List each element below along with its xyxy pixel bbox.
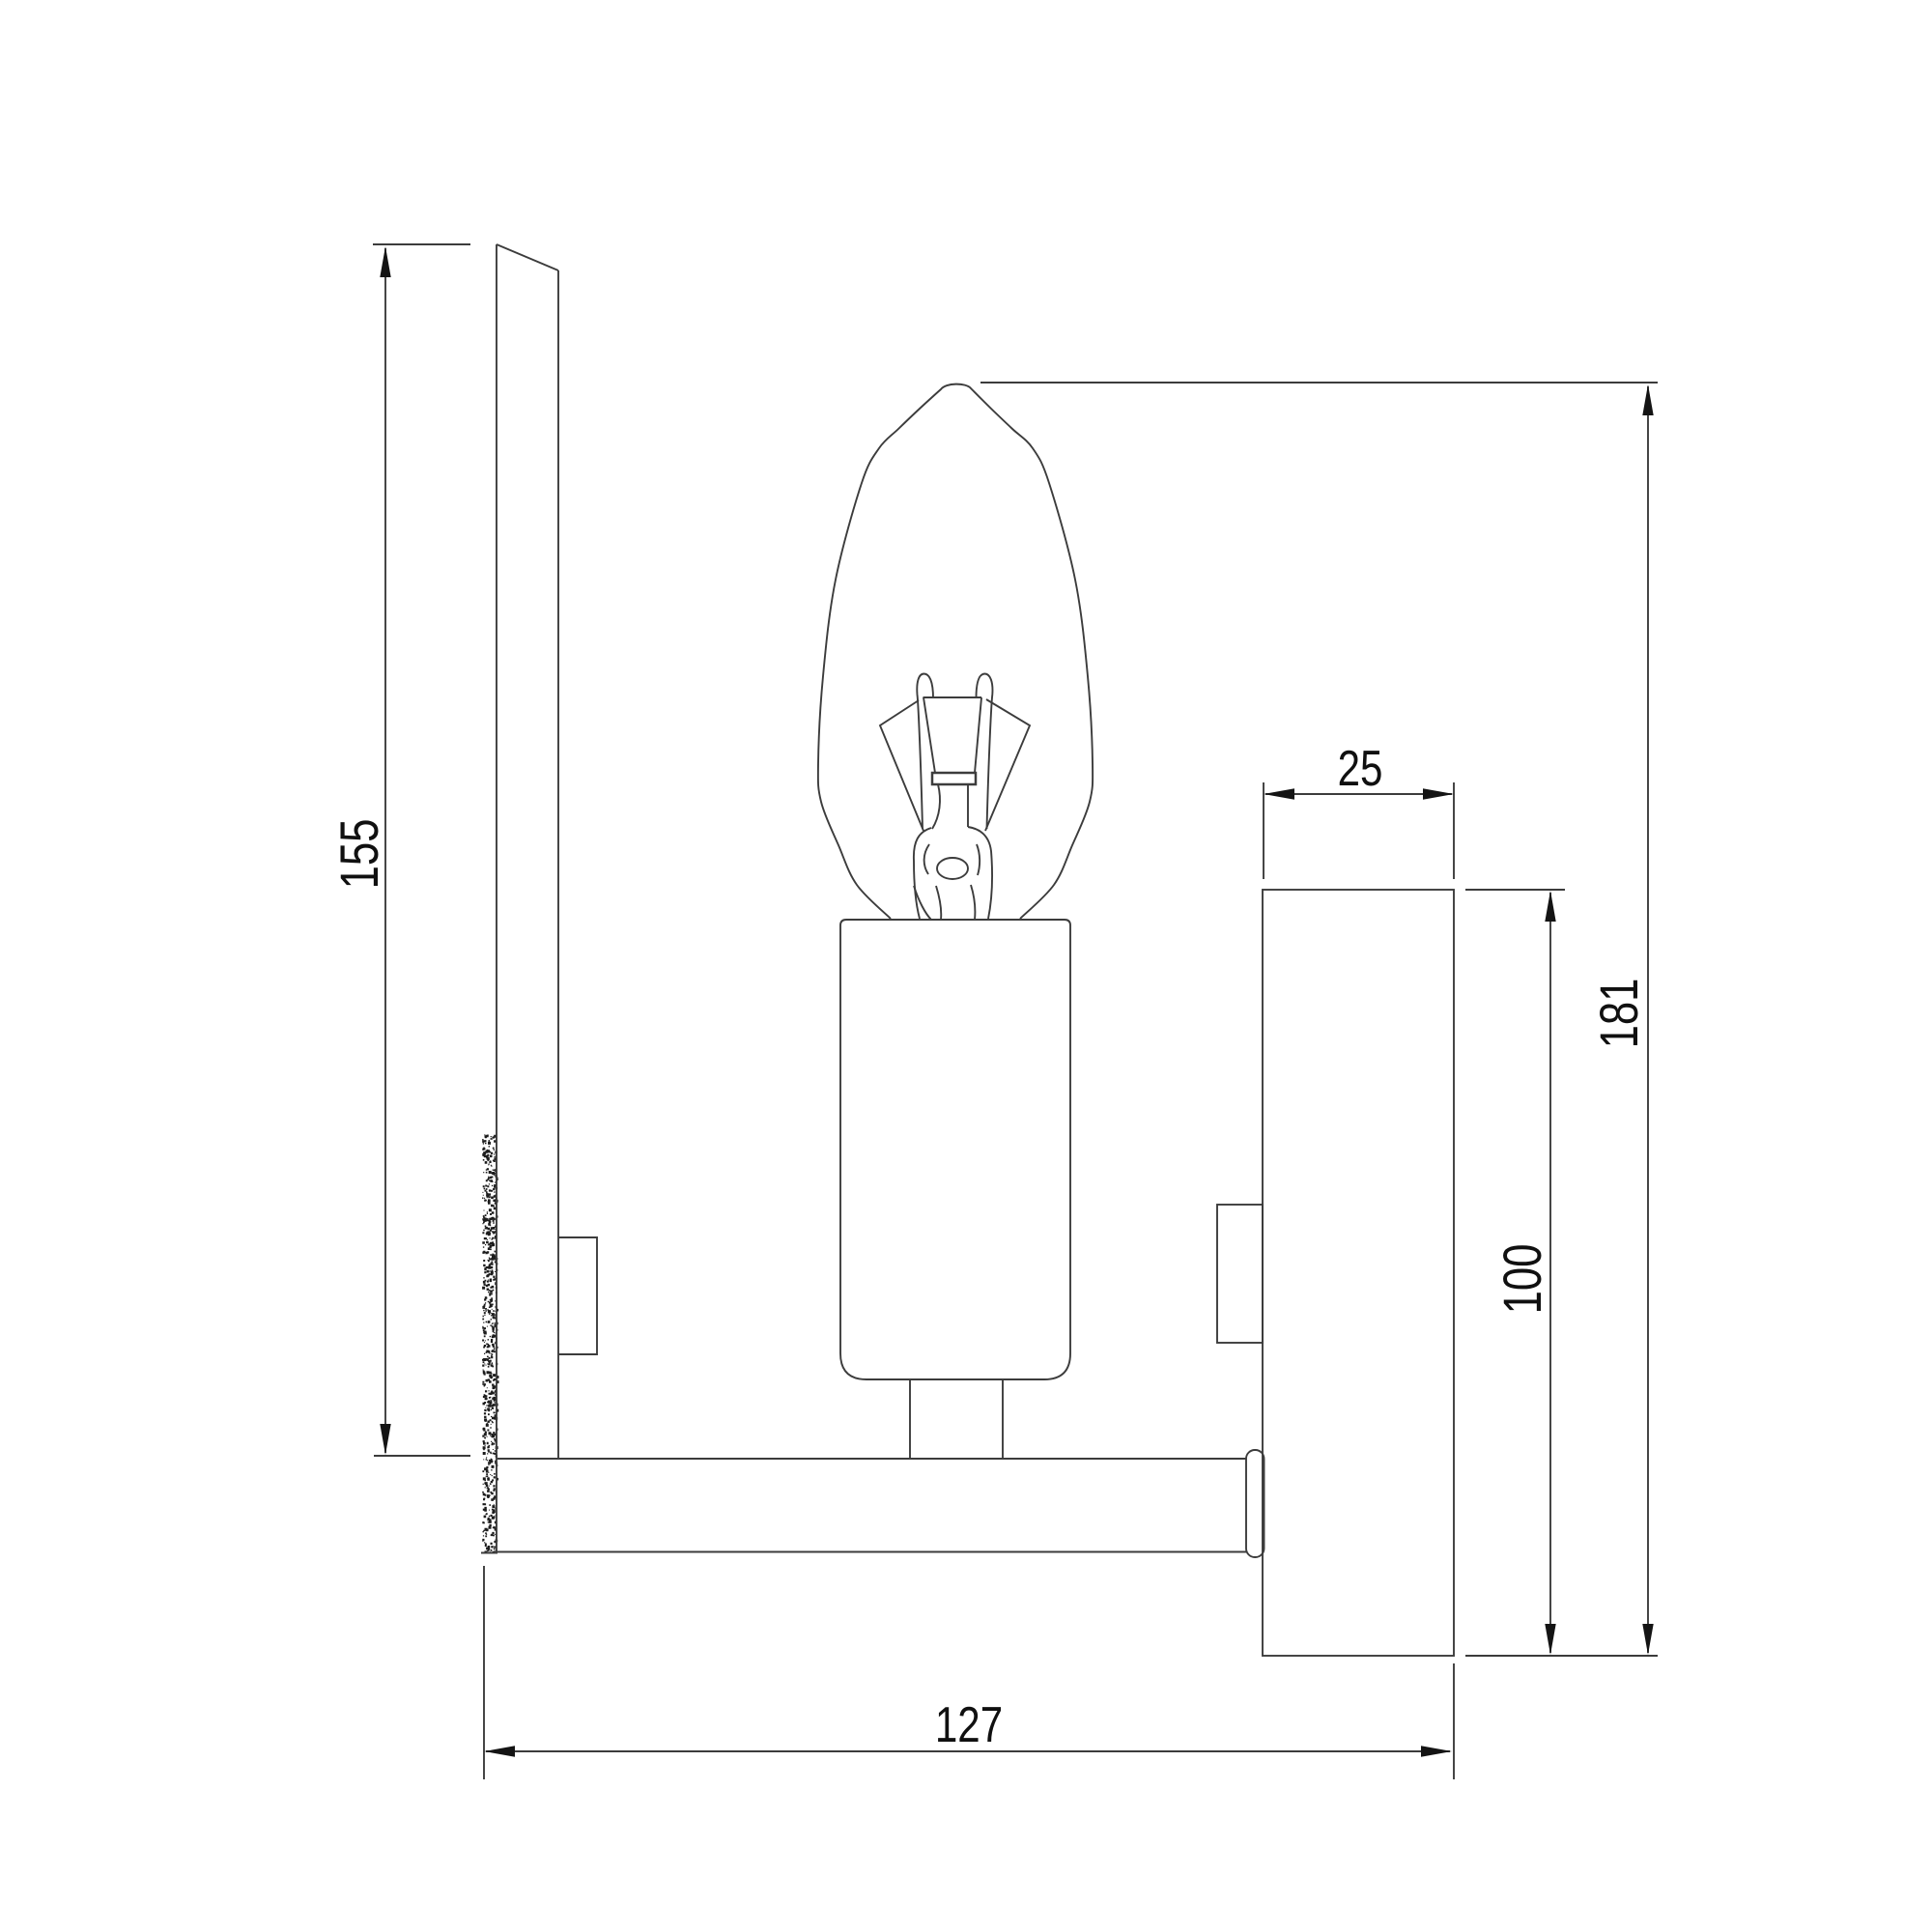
svg-text:100: 100 (1492, 1244, 1552, 1315)
svg-text:155: 155 (329, 819, 389, 890)
svg-text:181: 181 (1589, 979, 1649, 1049)
svg-text:25: 25 (1338, 741, 1383, 797)
svg-text:127: 127 (935, 1697, 1003, 1753)
